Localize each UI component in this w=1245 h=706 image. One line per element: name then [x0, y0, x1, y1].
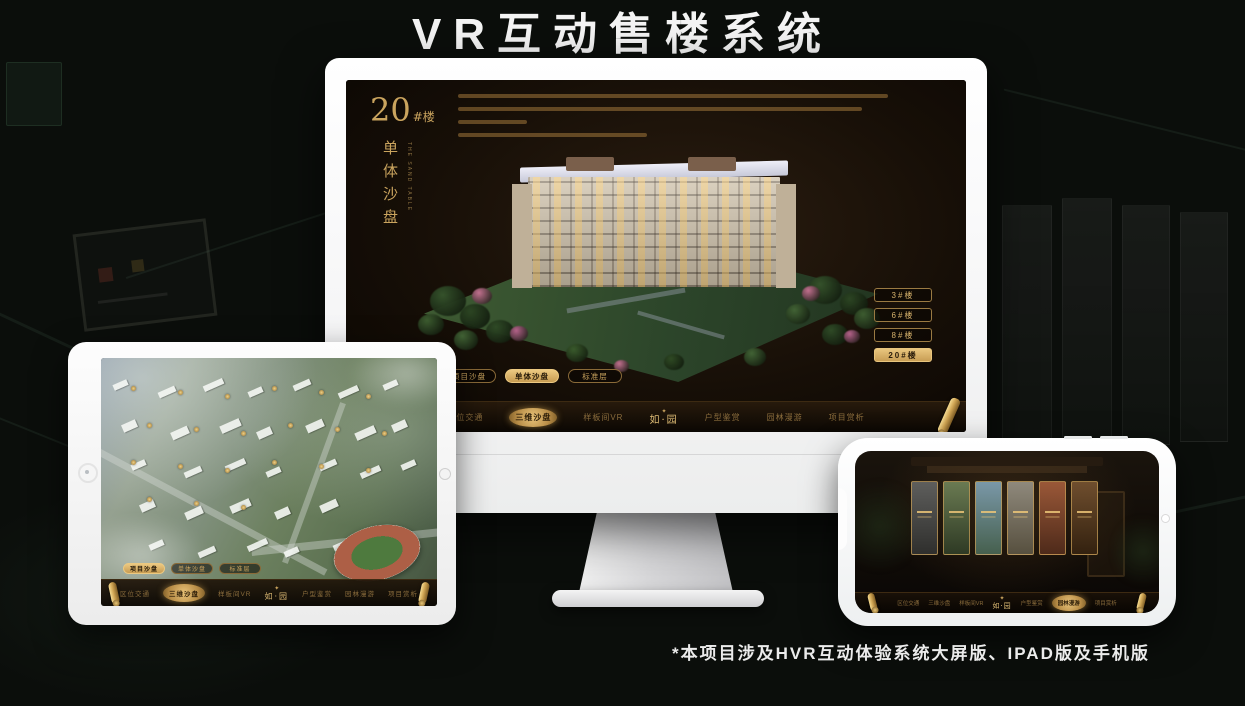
tab-标准层[interactable]: 标准层: [219, 563, 261, 574]
gallery-card-1[interactable]: [911, 481, 938, 555]
gallery-card-2[interactable]: [943, 481, 970, 555]
nav-item-样板间VR[interactable]: 样板间VR: [959, 599, 983, 607]
nav-item-户型鉴赏[interactable]: 户型鉴赏: [302, 588, 332, 598]
nav-logo-text: 如·园: [649, 416, 678, 426]
nav-item-样板间VR[interactable]: 样板间VR: [583, 412, 623, 423]
front-camera-icon: [1161, 514, 1170, 523]
camera-icon: [78, 463, 98, 483]
nav-item-园林漫游[interactable]: 园林漫游: [767, 412, 803, 423]
nav-item-户型鉴赏[interactable]: 户型鉴赏: [705, 412, 741, 423]
floor-button-8#楼[interactable]: 8#楼: [874, 328, 932, 342]
scroll-icon: [1136, 592, 1147, 611]
phone-device: 区位交通三维沙盘样板间VR✦如·园户型鉴赏园林漫游项目赏析: [838, 438, 1176, 626]
nav-item-三维沙盘[interactable]: 三维沙盘: [509, 408, 557, 427]
tab-单体沙盘[interactable]: 单体沙盘: [171, 563, 213, 574]
nav-logo: ✦如·园: [992, 596, 1011, 610]
gallery-card-3[interactable]: [975, 481, 1002, 555]
floor-subtitle-en: THE SAND TABLE: [406, 142, 412, 212]
tablet-navbar: 区位交通三维沙盘样板间VR✦如·园户型鉴赏园林漫游项目赏析: [101, 579, 437, 606]
nav-item-项目赏析[interactable]: 项目赏析: [829, 412, 865, 423]
nav-item-项目赏析[interactable]: 项目赏析: [388, 588, 418, 598]
gallery-card-5[interactable]: [1039, 481, 1066, 555]
background-plaque: [73, 218, 218, 332]
tablet-device: 项目沙盘单体沙盘标准层 区位交通三维沙盘样板间VR✦如·园户型鉴赏园林漫游项目赏…: [68, 342, 456, 625]
scroll-icon: [867, 592, 878, 611]
tab-项目沙盘[interactable]: 项目沙盘: [123, 563, 165, 574]
volume-button[interactable]: [1064, 436, 1092, 439]
building-model-render: [416, 138, 886, 388]
floor-button-3#楼[interactable]: 3#楼: [874, 288, 932, 302]
scroll-icon: [418, 581, 430, 604]
nav-item-园林漫游[interactable]: 园林漫游: [345, 588, 375, 598]
tab-单体沙盘[interactable]: 单体沙盘: [505, 369, 559, 383]
page-title: VR互动售楼系统: [412, 0, 833, 62]
phone-notch: [838, 488, 847, 550]
floor-buttons: 3#楼6#楼8#楼20#楼: [874, 288, 932, 362]
nav-logo-text: 如·园: [992, 603, 1011, 610]
scene-gallery: [911, 481, 1098, 555]
floor-subtitle: 单体沙盘: [380, 140, 401, 232]
nav-item-区位交通[interactable]: 区位交通: [120, 588, 150, 598]
nav-item-三维沙盘[interactable]: 三维沙盘: [163, 584, 205, 602]
view-tabs: 项目沙盘单体沙盘标准层: [442, 369, 622, 383]
tablet-view-tabs: 项目沙盘单体沙盘标准层: [123, 563, 261, 574]
nav-item-园林漫游[interactable]: 园林漫游: [1052, 595, 1086, 611]
gallery-card-4[interactable]: [1007, 481, 1034, 555]
nav-logo: ✦如·园: [264, 586, 289, 601]
nav-item-区位交通[interactable]: 区位交通: [897, 599, 919, 607]
scroll-icon: [108, 581, 120, 604]
nav-item-三维沙盘[interactable]: 三维沙盘: [928, 599, 950, 607]
nav-item-项目赏析[interactable]: 项目赏析: [1095, 599, 1117, 607]
floor-button-20#楼[interactable]: 20#楼: [874, 348, 932, 362]
apartment-building: [528, 164, 780, 290]
monitor-stand-neck: [578, 513, 734, 597]
nav-item-户型鉴赏[interactable]: 户型鉴赏: [1021, 599, 1043, 607]
phone-navbar: 区位交通三维沙盘样板间VR✦如·园户型鉴赏园林漫游项目赏析: [855, 592, 1159, 613]
scroll-icon: [937, 397, 962, 432]
tablet-screen: 项目沙盘单体沙盘标准层 区位交通三维沙盘样板间VR✦如·园户型鉴赏园林漫游项目赏…: [101, 358, 437, 606]
interior-roof: [911, 457, 1103, 466]
volume-button[interactable]: [1100, 436, 1128, 439]
background-sign: [6, 62, 62, 126]
floor-button-6#楼[interactable]: 6#楼: [874, 308, 932, 322]
nav-logo: ✦如·园: [649, 409, 678, 426]
tab-标准层[interactable]: 标准层: [568, 369, 622, 383]
phone-screen: 区位交通三维沙盘样板间VR✦如·园户型鉴赏园林漫游项目赏析: [855, 451, 1159, 613]
nav-item-样板间VR[interactable]: 样板间VR: [218, 588, 252, 598]
floor-suffix: #楼: [413, 110, 435, 124]
seal-emblem-icon: ✦: [662, 409, 667, 415]
gallery-card-6[interactable]: [1071, 481, 1098, 555]
home-button[interactable]: [439, 468, 451, 480]
monitor-stand-base: [552, 590, 764, 607]
interior-beam: [927, 466, 1087, 473]
nav-logo-text: 如·园: [264, 593, 289, 601]
footnote: *本项目涉及HVR互动体验系统大屏版、IPAD版及手机版: [672, 639, 1150, 664]
seal-emblem-icon: ✦: [274, 586, 279, 592]
floor-number: 20: [370, 91, 411, 129]
floor-title: 20#楼: [370, 94, 435, 126]
